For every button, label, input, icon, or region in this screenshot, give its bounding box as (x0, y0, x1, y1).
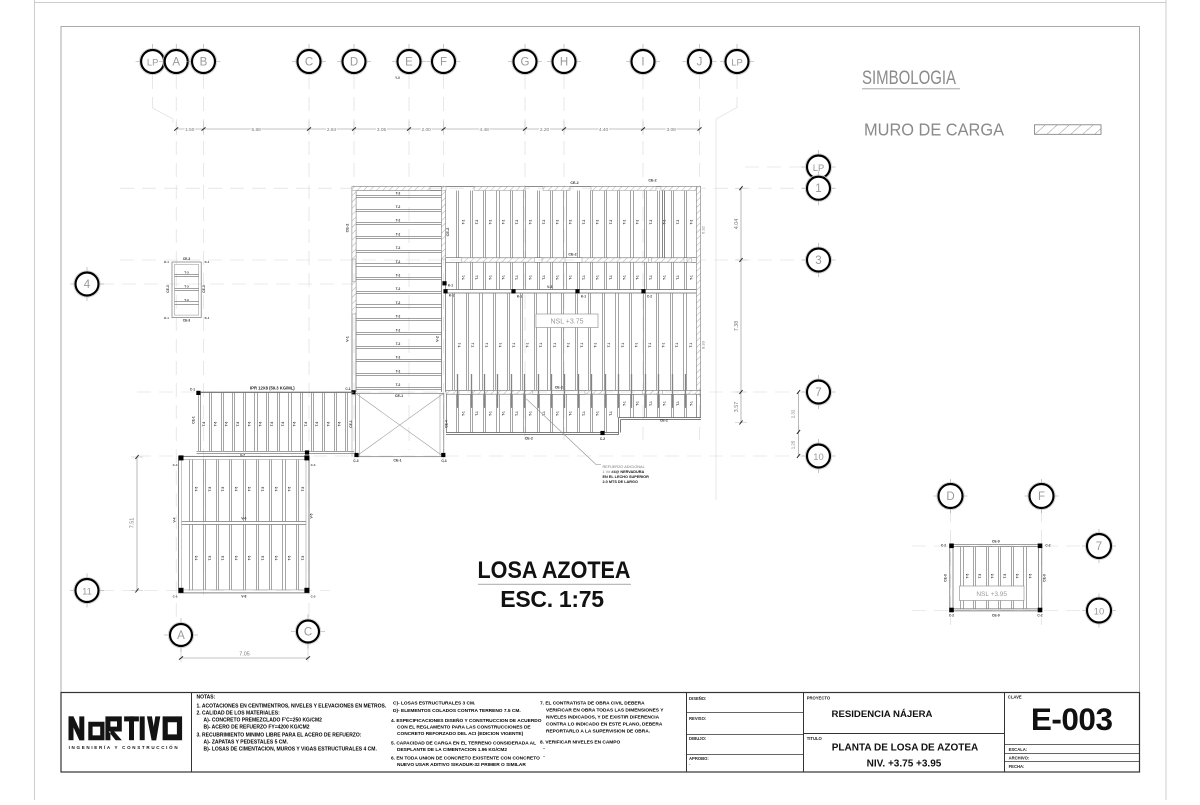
svg-text:4.04: 4.04 (734, 219, 740, 230)
svg-text:CONCRETO REFORZADO DEL ACI (ED: CONCRETO REFORZADO DEL ACI (EDICION VIGE… (397, 731, 524, 737)
svg-text:B)- ACERO DE REFUERZO FY=4200: B)- ACERO DE REFUERZO FY=4200 KG/CM2 (204, 725, 310, 731)
svg-text:2.00: 2.00 (422, 127, 432, 133)
svg-text:T-5: T-5 (1028, 573, 1032, 578)
svg-text:T-6: T-6 (281, 421, 285, 426)
svg-text:NIV. +3.75 +3.95: NIV. +3.75 +3.95 (867, 759, 942, 770)
svg-text:6. EN TODA UNION DE CONCRETO E: 6. EN TODA UNION DE CONCRETO EXISTENTE C… (391, 756, 540, 762)
svg-text:F: F (1038, 491, 1045, 503)
svg-text:T-2: T-2 (462, 219, 466, 224)
svg-text:NUEVO USAR ADITIVO SIKADUR-32: NUEVO USAR ADITIVO SIKADUR-32 PRIMER O S… (397, 762, 526, 768)
svg-text:E-003: E-003 (1031, 701, 1113, 737)
svg-text:T-1: T-1 (609, 275, 613, 280)
svg-text:SIMBOLOGIA: SIMBOLOGIA (862, 67, 956, 89)
svg-text:T-1: T-1 (689, 275, 693, 280)
svg-text:V-6: V-6 (241, 517, 246, 521)
svg-text:ARCHIVO:: ARCHIVO: (1009, 755, 1030, 760)
svg-text:REPORTARLO A LA SUPERVISION DE: REPORTARLO A LA SUPERVISION DE OBRA. (546, 729, 650, 735)
svg-text:T-5: T-5 (195, 555, 199, 560)
svg-text:T-1: T-1 (553, 342, 557, 347)
svg-text:T-1: T-1 (502, 275, 506, 280)
svg-text:T-2: T-2 (396, 301, 401, 305)
svg-text:CE-1: CE-1 (393, 459, 401, 463)
svg-text:2. CALIDAD DE LOS MATERIALES:: 2. CALIDAD DE LOS MATERIALES: (197, 711, 281, 717)
svg-text:E: E (405, 56, 413, 68)
svg-text:T-1: T-1 (676, 401, 680, 406)
svg-text:V-5: V-5 (310, 513, 314, 518)
svg-text:T-6: T-6 (247, 421, 251, 426)
svg-text:T-1: T-1 (596, 275, 600, 280)
svg-text:V-1: V-1 (346, 336, 350, 342)
svg-text:C-4: C-4 (311, 463, 316, 467)
svg-text:CE-2: CE-2 (660, 419, 668, 423)
svg-text:T-2: T-2 (636, 219, 640, 224)
svg-text:7.05: 7.05 (239, 652, 250, 658)
svg-text:7: 7 (1096, 541, 1102, 553)
svg-text:CE-4: CE-4 (445, 420, 449, 428)
svg-text:2.20: 2.20 (540, 127, 550, 133)
svg-text:T-1: T-1 (539, 342, 543, 347)
svg-text:V-3: V-3 (547, 285, 552, 289)
svg-text:5.88: 5.88 (252, 127, 262, 133)
svg-text:T-1: T-1 (555, 275, 559, 280)
svg-text:T-5: T-5 (208, 486, 212, 491)
svg-text:T-3: T-3 (184, 270, 189, 274)
svg-text:CE-2: CE-2 (525, 437, 533, 441)
svg-text:C-1: C-1 (345, 387, 350, 391)
svg-text:ESCALA:: ESCALA: (1009, 747, 1028, 752)
svg-text:T-1: T-1 (569, 275, 573, 280)
svg-text:C-2: C-2 (1045, 544, 1050, 548)
svg-text:INGENIERÍA Y CONSTRUCCIÓN: INGENIERÍA Y CONSTRUCCIÓN (69, 743, 180, 750)
svg-text:NSL +3.95: NSL +3.95 (976, 591, 1007, 598)
svg-text:4.40: 4.40 (599, 127, 609, 133)
svg-text:CE-3: CE-3 (183, 257, 191, 261)
svg-text:TITULO: TITULO (807, 736, 823, 741)
svg-text:6.32: 6.32 (701, 225, 706, 234)
svg-text:8. VERIFICAR NIVELES EN CAMPO: 8. VERIFICAR NIVELES EN CAMPO (540, 740, 620, 746)
svg-text:T-2: T-2 (676, 219, 680, 224)
svg-text:T-1: T-1 (582, 275, 586, 280)
svg-text:CE-1: CE-1 (395, 394, 403, 398)
svg-text:CE-9: CE-9 (943, 574, 947, 582)
svg-text:MURO DE CARGA: MURO DE CARGA (864, 120, 1004, 140)
svg-text:CE-1: CE-1 (192, 416, 196, 424)
svg-text:C-2: C-2 (1037, 614, 1042, 618)
svg-text:T-2: T-2 (502, 219, 506, 224)
svg-text:T-5: T-5 (991, 573, 995, 578)
svg-text:T-1: T-1 (515, 275, 519, 280)
svg-text:D: D (946, 491, 954, 503)
svg-text:T-1: T-1 (569, 411, 573, 416)
svg-text:I: I (641, 56, 644, 68)
svg-text:1.50: 1.50 (185, 127, 195, 133)
svg-text:8.33: 8.33 (701, 340, 706, 349)
svg-text:K-1: K-1 (517, 295, 522, 299)
svg-text:C-2: C-2 (647, 295, 652, 299)
svg-text:T-5: T-5 (261, 486, 265, 491)
svg-text:K-1: K-1 (449, 294, 454, 298)
svg-text:C: C (305, 56, 313, 68)
svg-text:7. EL CONTRATISTA DE OBRA CIVI: 7. EL CONTRATISTA DE OBRA CIVIL DEBERA (540, 701, 645, 707)
svg-text:T-6: T-6 (259, 421, 263, 426)
svg-text:CE-2: CE-2 (346, 224, 350, 233)
svg-text:T-2: T-2 (555, 219, 559, 224)
svg-text:EN EL LECHO SUPERIOR: EN EL LECHO SUPERIOR (603, 475, 650, 479)
svg-text:T-2: T-2 (396, 315, 401, 319)
svg-text:3: 3 (815, 255, 821, 267)
svg-text:T-1: T-1 (663, 275, 667, 280)
svg-text:K-1: K-1 (448, 284, 453, 288)
svg-text:T-5: T-5 (301, 555, 305, 560)
svg-text:H: H (560, 56, 568, 68)
svg-text:T-1: T-1 (621, 342, 625, 347)
svg-text:T-6: T-6 (338, 421, 342, 426)
svg-text:T-2: T-2 (475, 219, 479, 224)
svg-text:T-1: T-1 (475, 275, 479, 280)
svg-text:A)- ZAPATAS Y PEDESTALES 5 CM.: A)- ZAPATAS Y PEDESTALES 5 CM. (204, 740, 289, 746)
svg-text:K-1: K-1 (164, 260, 169, 264)
svg-text:1 V# #4@ NERVADURA: 1 V# #4@ NERVADURA (603, 470, 645, 474)
svg-text:T-6: T-6 (236, 421, 240, 426)
svg-text:DIBUJO:: DIBUJO: (689, 736, 706, 741)
svg-text:11: 11 (82, 585, 92, 596)
svg-text:T-1: T-1 (609, 411, 613, 416)
svg-text:T-2: T-2 (396, 383, 401, 387)
svg-text:REFUERZO ADICIONAL: REFUERZO ADICIONAL (603, 465, 645, 469)
svg-text:4.48: 4.48 (480, 127, 490, 133)
svg-text:CE-1: CE-1 (349, 420, 353, 428)
svg-text:LP: LP (147, 56, 158, 67)
svg-text:CE-2: CE-2 (555, 385, 563, 389)
svg-text:T-1: T-1 (529, 411, 533, 416)
svg-text:PROYECTO: PROYECTO (807, 696, 831, 701)
svg-text:T-2: T-2 (396, 260, 401, 264)
svg-text:T-1: T-1 (475, 411, 479, 416)
svg-text:T-2: T-2 (515, 219, 519, 224)
svg-text:7: 7 (815, 387, 821, 399)
svg-text:T-5: T-5 (978, 573, 982, 578)
svg-text:NIVELES INDICADOS, Y DE EXISTI: NIVELES INDICADOS, Y DE EXISTIR DIFERENC… (546, 715, 660, 721)
svg-text:C-2: C-2 (941, 544, 946, 548)
svg-text:A: A (172, 56, 180, 68)
svg-text:T-6: T-6 (304, 421, 308, 426)
svg-text:T-1: T-1 (566, 342, 570, 347)
svg-text:C)- LOSAS ESTRUCTURALES 3 CM.: C)- LOSAS ESTRUCTURALES 3 CM. (393, 701, 475, 707)
svg-text:T-2: T-2 (582, 219, 586, 224)
svg-text:3.08: 3.08 (667, 127, 677, 133)
svg-text:T-1: T-1 (596, 411, 600, 416)
svg-text:T-2: T-2 (596, 219, 600, 224)
svg-text:T-1: T-1 (526, 342, 530, 347)
svg-text:T-1: T-1 (458, 342, 462, 347)
svg-text:T-6: T-6 (315, 421, 319, 426)
svg-text:T-1: T-1 (462, 411, 466, 416)
svg-text:CON EL REGLAMENTO PARA LAS CON: CON EL REGLAMENTO PARA LAS CONSTRUCCIONE… (397, 725, 531, 731)
svg-text:NSL +3.75: NSL +3.75 (550, 319, 583, 326)
svg-text:K-1: K-1 (205, 316, 210, 320)
svg-text:C-4: C-4 (173, 463, 178, 467)
svg-text:T-6: T-6 (270, 421, 274, 426)
svg-text:LOSA AZOTEA: LOSA AZOTEA (478, 557, 631, 584)
svg-text:T-2: T-2 (396, 342, 401, 346)
svg-text:T-2: T-2 (396, 232, 401, 236)
svg-text:T-1: T-1 (488, 275, 492, 280)
svg-text:T-1: T-1 (636, 275, 640, 280)
svg-text:T-1: T-1 (515, 411, 519, 416)
svg-text:T-1: T-1 (675, 342, 679, 347)
svg-text:J: J (697, 56, 703, 68)
svg-text:T-2: T-2 (396, 219, 401, 223)
svg-text:Y-0: Y-0 (395, 76, 400, 80)
svg-text:T-5: T-5 (261, 555, 265, 560)
svg-text:T-1: T-1 (488, 411, 492, 416)
svg-text:A: A (177, 630, 185, 642)
svg-text:T-2: T-2 (396, 205, 401, 209)
svg-text:VERIFICAR EN OBRA TODAS LAS DI: VERIFICAR EN OBRA TODAS LAS DIMENSIONES … (546, 708, 664, 714)
svg-text:3.57: 3.57 (734, 402, 740, 413)
svg-text:2.32: 2.32 (791, 409, 796, 418)
svg-text:T-5: T-5 (234, 555, 238, 560)
svg-text:4: 4 (84, 279, 91, 291)
svg-text:DISEÑO:: DISEÑO: (689, 696, 706, 701)
svg-text:T-6: T-6 (326, 421, 330, 426)
svg-text:C: C (304, 626, 312, 638)
svg-text:T-2: T-2 (396, 274, 401, 278)
svg-text:T-1: T-1 (636, 401, 640, 406)
svg-text:T-1: T-1 (607, 342, 611, 347)
svg-text:T-1: T-1 (663, 401, 667, 406)
svg-text:T-5: T-5 (1003, 573, 1007, 578)
svg-text:4. ESPECIFICACIONES DISEÑO Y C: 4. ESPECIFICACIONES DISEÑO Y CONSTRUCCIO… (391, 717, 542, 724)
svg-text:3. RECUBRIMIENTO MINIMO LIBRE: 3. RECUBRIMIENTO MINIMO LIBRE PARA EL AC… (197, 733, 362, 739)
svg-text:T-2: T-2 (529, 219, 533, 224)
svg-text:T-5: T-5 (301, 486, 305, 491)
svg-text:T-1: T-1 (582, 411, 586, 416)
svg-text:1: 1 (815, 183, 821, 195)
svg-text:5. CAPACIDAD DE CARGA EN EL TE: 5. CAPACIDAD DE CARGA EN EL TERRENO CONS… (391, 741, 536, 747)
svg-text:F: F (440, 56, 447, 68)
svg-text:T-1: T-1 (662, 342, 666, 347)
svg-text:LP: LP (813, 162, 824, 173)
svg-text:K-1: K-1 (164, 316, 169, 320)
svg-text:T-1: T-1 (580, 342, 584, 347)
svg-text:DESPLANTE DE LA CIMENTACION 1.: DESPLANTE DE LA CIMENTACION 1.96 KG/CM2 (397, 747, 507, 753)
svg-text:T-1: T-1 (649, 401, 653, 406)
svg-text:LP: LP (731, 56, 742, 67)
svg-text:CE-2: CE-2 (570, 181, 578, 185)
svg-text:REVISO:: REVISO: (689, 716, 706, 721)
svg-text:PLANTA DE LOSA DE AZOTEA: PLANTA DE LOSA DE AZOTEA (832, 743, 978, 754)
svg-text:T-5: T-5 (221, 555, 225, 560)
svg-text:IPR 12X8 (59.3 KG/ML): IPR 12X8 (59.3 KG/ML) (250, 386, 295, 391)
svg-text:APROBO:: APROBO: (689, 756, 709, 761)
svg-text:T-2: T-2 (396, 356, 401, 360)
svg-text:7.38: 7.38 (734, 321, 740, 332)
svg-text:T-1: T-1 (634, 342, 638, 347)
svg-text:T-1: T-1 (512, 342, 516, 347)
svg-text:V-4: V-4 (173, 517, 177, 522)
svg-text:B: B (200, 56, 208, 68)
svg-text:T-2: T-2 (396, 191, 401, 195)
svg-text:CE-9: CE-9 (1043, 574, 1047, 582)
svg-text:T-5: T-5 (288, 555, 292, 560)
svg-text:C-2: C-2 (600, 437, 605, 441)
svg-text:T-3: T-3 (184, 298, 189, 302)
svg-text:T-2: T-2 (488, 219, 492, 224)
svg-text:V-2: V-2 (436, 336, 440, 342)
svg-text:T-2: T-2 (542, 219, 546, 224)
svg-text:T-2: T-2 (569, 219, 573, 224)
svg-text:3.05: 3.05 (377, 127, 387, 133)
svg-text:T-1: T-1 (502, 411, 506, 416)
svg-text:CLAVE: CLAVE (1008, 695, 1022, 700)
svg-text:1. ACOTACIONES EN CENTIMENTROS: 1. ACOTACIONES EN CENTIMENTROS, NIVELES … (197, 704, 387, 710)
svg-text:T-1: T-1 (462, 275, 466, 280)
svg-text:D: D (350, 56, 358, 68)
svg-text:C-5: C-5 (311, 595, 316, 599)
svg-text:NOTAS:: NOTAS: (197, 695, 216, 701)
svg-text:CE-2: CE-2 (648, 179, 656, 183)
svg-text:ESC. 1:75: ESC. 1:75 (500, 586, 604, 612)
svg-text:7.51: 7.51 (130, 518, 136, 529)
svg-text:2.84: 2.84 (327, 127, 337, 133)
svg-text:T-5: T-5 (248, 555, 252, 560)
svg-text:CE-2: CE-2 (568, 253, 576, 257)
svg-text:T-2: T-2 (396, 287, 401, 291)
svg-text:C-1: C-1 (190, 388, 195, 392)
svg-text:V-8: V-8 (241, 595, 246, 599)
svg-text:CE-3: CE-3 (202, 285, 206, 293)
svg-text:T-2: T-2 (396, 246, 401, 250)
svg-text:C-3: C-3 (441, 459, 446, 463)
svg-text:T-5: T-5 (221, 486, 225, 491)
svg-text:T-1: T-1 (622, 275, 626, 280)
svg-text:T-2: T-2 (689, 219, 693, 224)
svg-text:1.25: 1.25 (791, 440, 796, 449)
svg-text:CE-9: CE-9 (992, 540, 1000, 544)
svg-text:K-1: K-1 (581, 295, 586, 299)
svg-text:10: 10 (1094, 605, 1104, 616)
svg-text:T-2: T-2 (622, 219, 626, 224)
svg-text:G: G (521, 56, 530, 68)
svg-text:T-5: T-5 (965, 573, 969, 578)
svg-text:T-2: T-2 (396, 369, 401, 373)
svg-text:T-1: T-1 (485, 342, 489, 347)
svg-text:CE-2: CE-2 (446, 228, 450, 237)
svg-text:T-2: T-2 (649, 219, 653, 224)
svg-text:T-1: T-1 (689, 342, 693, 347)
svg-text:T-1: T-1 (622, 401, 626, 406)
svg-text:T-6: T-6 (202, 421, 206, 426)
svg-text:T-1: T-1 (648, 342, 652, 347)
svg-text:T-2: T-2 (396, 328, 401, 332)
svg-text:2.0 MTS DE LARGO: 2.0 MTS DE LARGO (603, 480, 638, 484)
svg-text:RESIDENCIA NÁJERA: RESIDENCIA NÁJERA (832, 708, 933, 720)
svg-text:T-1: T-1 (676, 275, 680, 280)
svg-text:CE-9: CE-9 (992, 614, 1000, 618)
svg-text:T-5: T-5 (274, 486, 278, 491)
svg-text:T-1: T-1 (594, 342, 598, 347)
svg-text:T-3: T-3 (184, 284, 189, 288)
svg-text:CONTRA LO INDICADO EN ESTE PLA: CONTRA LO INDICADO EN ESTE PLANO, DEBERA (546, 722, 663, 728)
svg-text:T-5: T-5 (195, 486, 199, 491)
svg-text:T-1: T-1 (529, 275, 533, 280)
svg-text:T-2: T-2 (609, 219, 613, 224)
svg-text:T-5: T-5 (288, 486, 292, 491)
svg-text:T-6: T-6 (213, 421, 217, 426)
svg-text:T-1: T-1 (471, 342, 475, 347)
svg-text:C-2: C-2 (949, 614, 954, 618)
svg-text:T-5: T-5 (248, 486, 252, 491)
svg-text:10: 10 (813, 451, 823, 462)
svg-text:T-1: T-1 (555, 411, 559, 416)
svg-text:C-3: C-3 (353, 459, 358, 463)
svg-text:D)- ELEMENTOS COLADOS CONTRA T: D)- ELEMENTOS COLADOS CONTRA TERRENO 7.5… (393, 708, 521, 714)
svg-text:FECHA:: FECHA: (1009, 764, 1025, 769)
svg-text:T-5: T-5 (234, 486, 238, 491)
svg-text:T-1: T-1 (649, 275, 653, 280)
svg-text:C-5: C-5 (173, 595, 178, 599)
svg-text:T-1: T-1 (542, 275, 546, 280)
svg-text:T-5: T-5 (274, 555, 278, 560)
svg-text:T-6: T-6 (225, 421, 229, 426)
svg-text:T-1: T-1 (498, 342, 502, 347)
svg-text:CE-3: CE-3 (166, 285, 170, 293)
svg-text:K-1: K-1 (205, 260, 210, 264)
svg-text:A)- CONCRETO PREMEZCLADO F’C=2: A)- CONCRETO PREMEZCLADO F’C=250 KG/CM2 (204, 718, 323, 724)
svg-text:T-5: T-5 (1016, 573, 1020, 578)
svg-text:T-1: T-1 (689, 401, 693, 406)
svg-text:T-6: T-6 (293, 421, 297, 426)
svg-text:T-5: T-5 (208, 555, 212, 560)
svg-text:CE-3: CE-3 (183, 319, 191, 323)
svg-text:B)- LOSAS DE CIMENTACION, MURO: B)- LOSAS DE CIMENTACION, MUROS Y VIGAS … (204, 747, 378, 753)
